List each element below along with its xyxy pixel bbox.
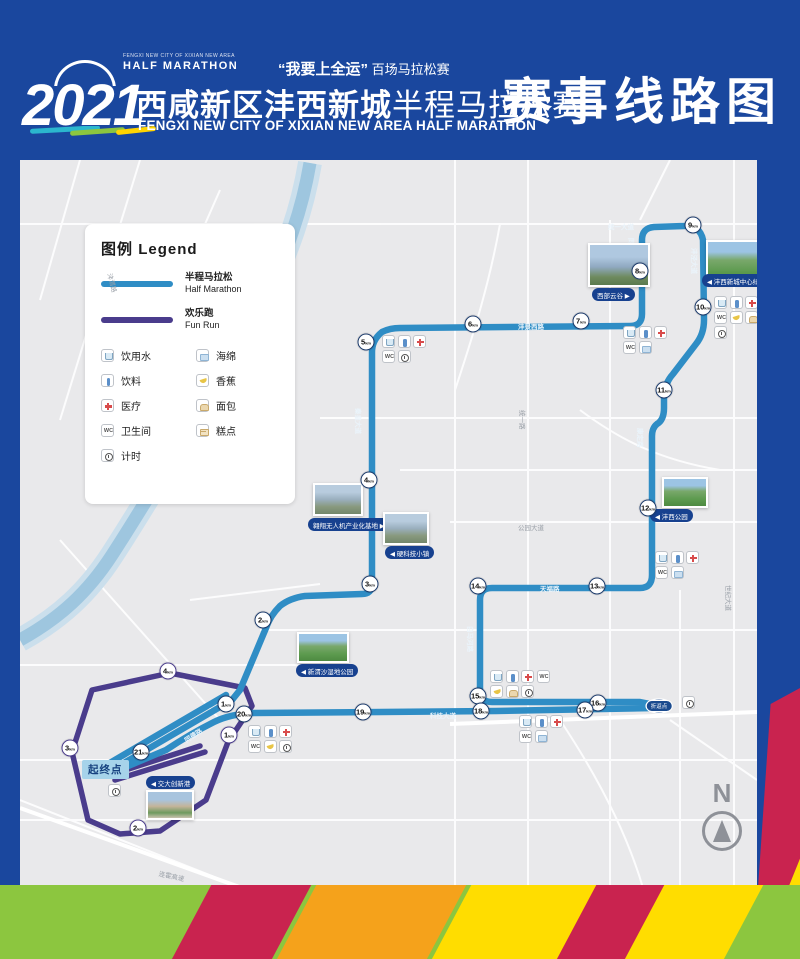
toilet-icon: [519, 730, 532, 743]
legend-box: 图例 Legend 半程马拉松Half Marathon 欢乐跑Fun Run …: [85, 224, 295, 504]
facility-label: 香蕉: [216, 373, 236, 388]
toilet-icon: [623, 341, 636, 354]
km-marker-half-1: 1km: [218, 696, 235, 713]
landmark-photo: [383, 512, 429, 545]
timing-icon: [101, 449, 114, 462]
road-label-12: 公园大道: [518, 522, 544, 532]
logo-subtitle: FENGXI NEW CITY OF XIXIAN NEW AREA: [123, 54, 238, 60]
facility-cluster-2: [714, 296, 757, 341]
logo-title: HALF MARATHON: [123, 60, 238, 72]
toilet-icon: [714, 311, 727, 324]
legend-facility-toilet: 卫生间: [101, 418, 196, 443]
facility-cluster-1: [623, 326, 670, 356]
toilet-icon: [248, 740, 261, 753]
legend-route-list: 半程马拉松Half Marathon 欢乐跑Fun Run: [101, 272, 281, 331]
facility-cluster-3: [655, 551, 702, 581]
drink-icon: [671, 551, 684, 564]
legend-route-label: 半程马拉松Half Marathon: [185, 272, 242, 295]
water-icon: [248, 725, 261, 738]
water-icon: [655, 551, 668, 564]
banana-icon: [264, 740, 277, 753]
sponge-icon: [535, 730, 548, 743]
page-title: 赛事线路图: [502, 62, 782, 134]
landmark-label: 西部云谷 ▶: [592, 288, 635, 301]
km-marker-half-7: 7km: [573, 313, 590, 330]
slogan-bold: “我要上全运”: [278, 61, 368, 78]
facility-label: 饮用水: [121, 348, 151, 363]
facility-label: 医疗: [121, 398, 141, 413]
medical-icon: [686, 551, 699, 564]
landmark-photo: [662, 477, 708, 508]
facility-label: 卫生间: [121, 423, 151, 438]
road-label-0: 秦皇大道: [354, 408, 364, 434]
water-icon: [101, 349, 114, 362]
toilet-icon: [382, 350, 395, 363]
timing-icon: [398, 350, 411, 363]
header-banner: FENGXI NEW CITY OF XIXIAN NEW AREA HALF …: [0, 0, 800, 160]
drink-icon: [639, 326, 652, 339]
legend-facility-bread: 面包: [196, 393, 281, 418]
legend-facility-drink: 饮料: [101, 368, 196, 393]
north-arrow-icon: [702, 811, 742, 851]
road-label-2: 统一大道: [608, 221, 634, 231]
medical-icon: [654, 326, 667, 339]
km-marker-half-11: 11km: [656, 382, 673, 399]
km-marker-half-10: 10km: [695, 299, 712, 316]
km-marker-fun-4: 4km: [160, 663, 177, 680]
water-icon: [623, 326, 636, 339]
footer-ribbon: [0, 885, 800, 959]
medical-icon: [745, 296, 757, 309]
road-label-5: 康定路: [636, 428, 646, 448]
route-map: 图例 Legend 半程马拉松Half Marathon 欢乐跑Fun Run …: [20, 160, 757, 895]
turnaround-label: 折返点: [646, 700, 673, 712]
facility-cluster-6: [248, 725, 295, 755]
km-marker-half-13: 13km: [589, 578, 606, 595]
bread-icon: [745, 311, 757, 324]
legend-facility-list: 饮用水饮料医疗卫生间计时海绵香蕉面包糕点: [101, 343, 281, 468]
drink-icon: [398, 335, 411, 348]
medical-icon: [101, 399, 114, 412]
timing-icon: [279, 740, 292, 753]
drink-icon: [730, 296, 743, 309]
water-icon: [382, 335, 395, 348]
facility-cluster-4: [490, 670, 552, 700]
facility-label: 糕点: [216, 423, 236, 438]
legend-facility-timing: 计时: [101, 443, 196, 468]
km-marker-half-8: 8km: [632, 263, 649, 280]
legend-route-line: [101, 317, 173, 323]
landmark-photo: [297, 632, 349, 663]
km-marker-half-2: 2km: [255, 612, 272, 629]
road-label-7: 白马河路: [466, 626, 476, 652]
km-marker-half-18: 18km: [473, 703, 490, 720]
drink-icon: [535, 715, 548, 728]
landmark-label: ◀ 交大创新港: [146, 776, 195, 789]
km-marker-half-12: 12km: [640, 500, 657, 517]
landmark-label: ◀ 沣西公园: [650, 509, 693, 522]
sponge-icon: [639, 341, 652, 354]
timing-icon: [108, 784, 121, 797]
slogan-rest: 百场马拉松赛: [368, 62, 450, 77]
road-label-10: 统一路: [518, 410, 528, 430]
road-label-1: 沣景西路: [518, 321, 544, 331]
north-label: N: [692, 778, 752, 809]
legend-facility-sponge: 海绵: [196, 343, 281, 368]
legend-route-label: 欢乐跑Fun Run: [185, 308, 220, 331]
facility-label: 面包: [216, 398, 236, 413]
landmark-label: 翱翔无人机产业化基地 ▶: [308, 518, 390, 531]
medical-icon: [521, 670, 534, 683]
landmark-label: ◀ 沣西新城中心绿廊: [702, 274, 757, 287]
km-marker-fun-2: 2km: [130, 820, 147, 837]
km-marker-half-20: 20km: [236, 706, 253, 723]
landmark-photo: [313, 483, 363, 516]
legend-title: 图例 Legend: [101, 238, 281, 259]
sponge-icon: [671, 566, 684, 579]
km-marker-half-9: 9km: [685, 217, 702, 234]
landmark-photo: [146, 790, 194, 820]
medical-icon: [279, 725, 292, 738]
water-icon: [519, 715, 532, 728]
banana-icon: [730, 311, 743, 324]
facility-cluster-7: [682, 696, 698, 711]
water-icon: [490, 670, 503, 683]
poster-root: { "header": { "year": "2021", "logo_smal…: [0, 0, 800, 959]
road-label-4: 沣泾大道: [690, 248, 700, 274]
km-marker-half-17: 17km: [577, 702, 594, 719]
event-title-en: FENGXI NEW CITY OF XIXIAN NEW AREA HALF …: [138, 118, 536, 133]
km-marker-fun-1: 1km: [221, 727, 238, 744]
landmark-label: ◀ 硬科技小镇: [385, 546, 434, 559]
toilet-icon: [101, 424, 114, 437]
landmark-label: ◀ 新渭沙湿地公园: [296, 664, 358, 677]
drink-icon: [264, 725, 277, 738]
toilet-icon: [655, 566, 668, 579]
road-label-11: 世纪大道: [724, 585, 734, 611]
edge-ribbon-magenta: [758, 688, 800, 888]
medical-icon: [413, 335, 426, 348]
timing-icon: [521, 685, 534, 698]
timing-icon: [714, 326, 727, 339]
sponge-icon: [196, 349, 209, 362]
timing-icon: [682, 696, 695, 709]
km-marker-half-19: 19km: [355, 704, 372, 721]
legend-route-1: 欢乐跑Fun Run: [101, 308, 281, 331]
km-marker-half-21: 21km: [133, 744, 150, 761]
legend-facility-banana: 香蕉: [196, 368, 281, 393]
km-marker-half-6: 6km: [465, 316, 482, 333]
legend-facility-cake: 糕点: [196, 418, 281, 443]
facility-label: 海绵: [216, 348, 236, 363]
start-finish-label: 起终点: [82, 760, 129, 779]
cake-icon: [196, 424, 209, 437]
road-label-8: 科技大道: [430, 710, 456, 720]
legend-facility-medical: 医疗: [101, 393, 196, 418]
banana-icon: [490, 685, 503, 698]
facility-cluster-0: [382, 335, 429, 365]
km-marker-fun-3: 3km: [62, 740, 79, 757]
drink-icon: [101, 374, 114, 387]
road-label-6: 天福路: [540, 583, 560, 593]
logo-text: FENGXI NEW CITY OF XIXIAN NEW AREA HALF …: [123, 54, 238, 72]
medical-icon: [550, 715, 563, 728]
facility-label: 饮料: [121, 373, 141, 388]
drink-icon: [506, 670, 519, 683]
facility-cluster-5: [519, 715, 566, 745]
km-marker-half-14: 14km: [470, 578, 487, 595]
facility-cluster-8: [108, 784, 124, 799]
water-icon: [714, 296, 727, 309]
slogan: “我要上全运” 百场马拉松赛: [278, 58, 450, 79]
banana-icon: [196, 374, 209, 387]
toilet-icon: [537, 670, 550, 683]
facility-label: 计时: [121, 448, 141, 463]
legend-route-0: 半程马拉松Half Marathon: [101, 272, 281, 295]
km-marker-half-3: 3km: [362, 576, 379, 593]
north-compass: N: [692, 778, 752, 851]
legend-facility-water: 饮用水: [101, 343, 196, 368]
km-marker-half-4: 4km: [361, 472, 378, 489]
bread-icon: [196, 399, 209, 412]
km-marker-half-5: 5km: [358, 334, 375, 351]
bread-icon: [506, 685, 519, 698]
